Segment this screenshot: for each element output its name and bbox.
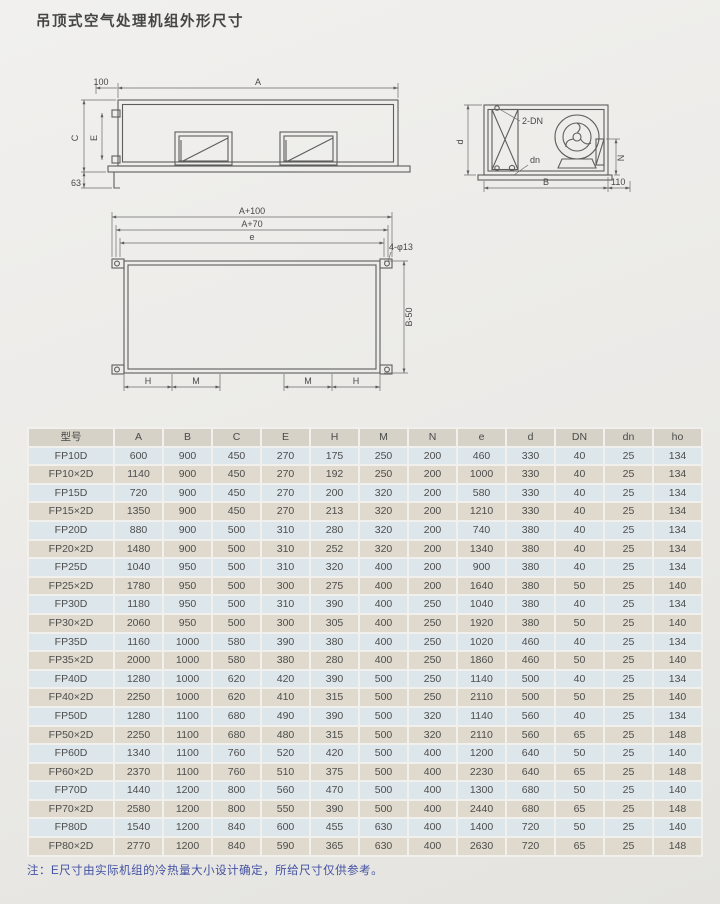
value-cell: 25	[605, 819, 652, 836]
value-cell: 134	[654, 541, 701, 558]
value-cell: 25	[605, 671, 652, 688]
dim-label-e: E	[89, 135, 99, 141]
value-cell: 400	[360, 615, 407, 632]
value-cell: 1200	[164, 801, 211, 818]
value-cell: 500	[213, 559, 260, 576]
value-cell: 250	[409, 596, 456, 613]
value-cell: 134	[654, 466, 701, 483]
value-cell: 1340	[458, 541, 505, 558]
value-cell: 900	[164, 485, 211, 502]
dimension-table: 型号ABCEHMNedDNdnho FP10D60090045027017525…	[27, 427, 703, 857]
value-cell: 1140	[458, 671, 505, 688]
model-cell: FP25×2D	[29, 578, 113, 595]
dim-label-d: d	[455, 139, 465, 144]
value-cell: 1180	[115, 596, 162, 613]
value-cell: 380	[507, 615, 554, 632]
value-cell: 134	[654, 503, 701, 520]
value-cell: 460	[507, 634, 554, 651]
value-cell: 500	[360, 671, 407, 688]
model-cell: FP35×2D	[29, 652, 113, 669]
table-row: FP10D6009004502701752502004603304025134	[29, 448, 701, 465]
value-cell: 380	[311, 634, 358, 651]
value-cell: 270	[262, 503, 309, 520]
value-cell: 500	[360, 764, 407, 781]
model-cell: FP10D	[29, 448, 113, 465]
model-cell: FP80×2D	[29, 838, 113, 855]
table-row: FP70D14401200800560470500400130068050251…	[29, 782, 701, 799]
value-cell: 2370	[115, 764, 162, 781]
value-cell: 950	[164, 559, 211, 576]
value-cell: 500	[213, 541, 260, 558]
column-header: N	[409, 429, 456, 446]
table-row: FP60×2D237011007605103755004002230640652…	[29, 764, 701, 781]
value-cell: 25	[605, 801, 652, 818]
value-cell: 320	[360, 522, 407, 539]
model-cell: FP80D	[29, 819, 113, 836]
value-cell: 65	[556, 801, 603, 818]
column-header: C	[213, 429, 260, 446]
column-header: e	[458, 429, 505, 446]
value-cell: 140	[654, 819, 701, 836]
table-row: FP35D11601000580390380400250102046040251…	[29, 634, 701, 651]
table-row: FP70×2D258012008005503905004002440680652…	[29, 801, 701, 818]
dim-label-110: 110	[611, 177, 625, 187]
dim-label-h-left: H	[145, 376, 152, 386]
value-cell: 1100	[164, 727, 211, 744]
value-cell: 380	[507, 596, 554, 613]
plan-body-outline	[112, 259, 392, 374]
model-cell: FP30×2D	[29, 615, 113, 632]
value-cell: 200	[409, 541, 456, 558]
table-row: FP25D10409505003103204002009003804025134	[29, 559, 701, 576]
dim-label-c: C	[70, 134, 80, 141]
value-cell: 175	[311, 448, 358, 465]
value-cell: 250	[360, 448, 407, 465]
value-cell: 500	[360, 727, 407, 744]
value-cell: 2580	[115, 801, 162, 818]
value-cell: 1210	[458, 503, 505, 520]
value-cell: 520	[262, 745, 309, 762]
dim-label-a100: A+100	[239, 206, 265, 216]
value-cell: 134	[654, 559, 701, 576]
value-cell: 490	[262, 708, 309, 725]
value-cell: 720	[115, 485, 162, 502]
value-cell: 148	[654, 801, 701, 818]
value-cell: 1280	[115, 708, 162, 725]
value-cell: 2000	[115, 652, 162, 669]
value-cell: 390	[311, 801, 358, 818]
table-row: FP10×2D114090045027019225020010003304025…	[29, 466, 701, 483]
value-cell: 50	[556, 689, 603, 706]
value-cell: 390	[311, 596, 358, 613]
value-cell: 2110	[458, 689, 505, 706]
value-cell: 25	[605, 596, 652, 613]
value-cell: 470	[311, 782, 358, 799]
value-cell: 390	[262, 634, 309, 651]
value-cell: 560	[262, 782, 309, 799]
value-cell: 192	[311, 466, 358, 483]
unit-body-outline	[108, 100, 410, 188]
value-cell: 2630	[458, 838, 505, 855]
value-cell: 305	[311, 615, 358, 632]
value-cell: 450	[213, 466, 260, 483]
value-cell: 1200	[458, 745, 505, 762]
value-cell: 310	[262, 522, 309, 539]
value-cell: 140	[654, 578, 701, 595]
value-cell: 1100	[164, 764, 211, 781]
value-cell: 65	[556, 838, 603, 855]
value-cell: 450	[213, 485, 260, 502]
value-cell: 760	[213, 745, 260, 762]
model-cell: FP35D	[29, 634, 113, 651]
value-cell: 140	[654, 615, 701, 632]
value-cell: 50	[556, 615, 603, 632]
table-note: 注：E尺寸由实际机组的冷热量大小设计确定，所给尺寸仅供参考。	[27, 862, 383, 878]
value-cell: 330	[507, 485, 554, 502]
value-cell: 800	[213, 801, 260, 818]
value-cell: 460	[458, 448, 505, 465]
value-cell: 310	[262, 559, 309, 576]
value-cell: 720	[507, 819, 554, 836]
value-cell: 300	[262, 578, 309, 595]
value-cell: 460	[507, 652, 554, 669]
value-cell: 1200	[164, 819, 211, 836]
model-cell: FP20×2D	[29, 541, 113, 558]
value-cell: 250	[409, 634, 456, 651]
value-cell: 40	[556, 485, 603, 502]
value-cell: 134	[654, 522, 701, 539]
value-cell: 330	[507, 503, 554, 520]
value-cell: 680	[213, 727, 260, 744]
value-cell: 680	[507, 782, 554, 799]
column-header: B	[164, 429, 211, 446]
dimension-table-wrap: 型号ABCEHMNedDNdnho FP10D60090045027017525…	[27, 427, 703, 857]
value-cell: 148	[654, 764, 701, 781]
dim-label-h-right: H	[353, 376, 360, 386]
value-cell: 420	[311, 745, 358, 762]
side-view-drawing: 2-DN dn d N B 110	[458, 84, 658, 199]
value-cell: 900	[164, 541, 211, 558]
value-cell: 140	[654, 782, 701, 799]
value-cell: 200	[409, 578, 456, 595]
dim-label-a: A	[255, 77, 261, 87]
model-cell: FP25D	[29, 559, 113, 576]
value-cell: 25	[605, 541, 652, 558]
value-cell: 65	[556, 727, 603, 744]
value-cell: 640	[507, 764, 554, 781]
value-cell: 800	[213, 782, 260, 799]
value-cell: 2440	[458, 801, 505, 818]
value-cell: 500	[213, 596, 260, 613]
value-cell: 315	[311, 727, 358, 744]
value-cell: 25	[605, 838, 652, 855]
table-row: FP50×2D225011006804803155003202110560652…	[29, 727, 701, 744]
column-header: d	[507, 429, 554, 446]
value-cell: 320	[409, 727, 456, 744]
value-cell: 200	[409, 485, 456, 502]
value-cell: 1140	[115, 466, 162, 483]
value-cell: 510	[262, 764, 309, 781]
value-cell: 148	[654, 727, 701, 744]
value-cell: 330	[507, 466, 554, 483]
table-row: FP15×2D135090045027021332020012103304025…	[29, 503, 701, 520]
value-cell: 1140	[458, 708, 505, 725]
value-cell: 25	[605, 782, 652, 799]
value-cell: 840	[213, 838, 260, 855]
value-cell: 680	[213, 708, 260, 725]
header-row: 型号ABCEHMNedDNdnho	[29, 429, 701, 446]
value-cell: 560	[507, 727, 554, 744]
value-cell: 300	[262, 615, 309, 632]
value-cell: 1340	[115, 745, 162, 762]
side-body-outline	[478, 105, 612, 180]
value-cell: 200	[409, 466, 456, 483]
value-cell: 40	[556, 541, 603, 558]
value-cell: 420	[262, 671, 309, 688]
value-cell: 320	[360, 503, 407, 520]
column-header: A	[115, 429, 162, 446]
dim-label-m-left: M	[192, 376, 200, 386]
value-cell: 500	[507, 689, 554, 706]
value-cell: 25	[605, 578, 652, 595]
value-cell: 500	[507, 671, 554, 688]
value-cell: 250	[360, 466, 407, 483]
value-cell: 1000	[164, 634, 211, 651]
value-cell: 250	[409, 652, 456, 669]
value-cell: 50	[556, 745, 603, 762]
table-row: FP35×2D200010005803802804002501860460502…	[29, 652, 701, 669]
value-cell: 1200	[164, 838, 211, 855]
value-cell: 1640	[458, 578, 505, 595]
value-cell: 200	[409, 559, 456, 576]
table-row: FP30D11809505003103904002501040380402513…	[29, 596, 701, 613]
value-cell: 900	[458, 559, 505, 576]
value-cell: 400	[409, 838, 456, 855]
value-cell: 580	[213, 634, 260, 651]
value-cell: 680	[507, 801, 554, 818]
table-row: FP20D8809005003102803202007403804025134	[29, 522, 701, 539]
value-cell: 320	[360, 541, 407, 558]
value-cell: 600	[262, 819, 309, 836]
label-2dn: 2-DN	[522, 116, 543, 126]
table-row: FP50D12801100680490390500320114056040251…	[29, 708, 701, 725]
value-cell: 1000	[164, 652, 211, 669]
value-cell: 25	[605, 559, 652, 576]
value-cell: 500	[360, 689, 407, 706]
value-cell: 400	[360, 596, 407, 613]
value-cell: 134	[654, 708, 701, 725]
value-cell: 1100	[164, 745, 211, 762]
value-cell: 25	[605, 503, 652, 520]
value-cell: 1040	[115, 559, 162, 576]
value-cell: 600	[115, 448, 162, 465]
value-cell: 25	[605, 764, 652, 781]
column-header: 型号	[29, 429, 113, 446]
value-cell: 250	[409, 689, 456, 706]
value-cell: 400	[360, 578, 407, 595]
value-cell: 2230	[458, 764, 505, 781]
value-cell: 40	[556, 559, 603, 576]
value-cell: 200	[311, 485, 358, 502]
value-cell: 50	[556, 578, 603, 595]
value-cell: 2770	[115, 838, 162, 855]
value-cell: 25	[605, 634, 652, 651]
value-cell: 200	[409, 522, 456, 539]
model-cell: FP15×2D	[29, 503, 113, 520]
fan-icon	[555, 115, 599, 168]
value-cell: 213	[311, 503, 358, 520]
value-cell: 25	[605, 448, 652, 465]
value-cell: 950	[164, 578, 211, 595]
value-cell: 375	[311, 764, 358, 781]
value-cell: 140	[654, 652, 701, 669]
value-cell: 950	[164, 596, 211, 613]
value-cell: 25	[605, 522, 652, 539]
value-cell: 40	[556, 466, 603, 483]
value-cell: 380	[507, 522, 554, 539]
value-cell: 630	[360, 838, 407, 855]
model-cell: FP50×2D	[29, 727, 113, 744]
column-header: dn	[605, 429, 652, 446]
value-cell: 900	[164, 503, 211, 520]
value-cell: 1860	[458, 652, 505, 669]
dim-label-b: B	[543, 177, 549, 187]
value-cell: 400	[360, 559, 407, 576]
value-cell: 400	[360, 652, 407, 669]
plan-dimension-lines	[112, 212, 408, 391]
value-cell: 50	[556, 652, 603, 669]
value-cell: 380	[507, 541, 554, 558]
model-cell: FP60×2D	[29, 764, 113, 781]
value-cell: 630	[360, 819, 407, 836]
value-cell: 900	[164, 466, 211, 483]
value-cell: 900	[164, 448, 211, 465]
value-cell: 200	[409, 448, 456, 465]
dim-label-m-right: M	[304, 376, 312, 386]
value-cell: 620	[213, 671, 260, 688]
value-cell: 380	[262, 652, 309, 669]
dim-label-b50: B-50	[404, 307, 414, 326]
value-cell: 640	[507, 745, 554, 762]
value-cell: 740	[458, 522, 505, 539]
value-cell: 25	[605, 708, 652, 725]
value-cell: 40	[556, 596, 603, 613]
model-cell: FP20D	[29, 522, 113, 539]
value-cell: 580	[213, 652, 260, 669]
value-cell: 1000	[164, 689, 211, 706]
value-cell: 270	[262, 466, 309, 483]
value-cell: 25	[605, 727, 652, 744]
value-cell: 25	[605, 652, 652, 669]
dim-label-100: 100	[93, 77, 108, 87]
table-row: FP30×2D206095050030030540025019203805025…	[29, 615, 701, 632]
table-row: FP25×2D178095050030027540020016403805025…	[29, 578, 701, 595]
value-cell: 320	[311, 559, 358, 576]
value-cell: 500	[213, 615, 260, 632]
value-cell: 500	[360, 708, 407, 725]
model-cell: FP40×2D	[29, 689, 113, 706]
value-cell: 1480	[115, 541, 162, 558]
value-cell: 365	[311, 838, 358, 855]
value-cell: 134	[654, 448, 701, 465]
model-cell: FP15D	[29, 485, 113, 502]
value-cell: 40	[556, 671, 603, 688]
value-cell: 1100	[164, 708, 211, 725]
value-cell: 500	[213, 522, 260, 539]
value-cell: 330	[507, 448, 554, 465]
model-cell: FP50D	[29, 708, 113, 725]
value-cell: 310	[262, 596, 309, 613]
value-cell: 455	[311, 819, 358, 836]
value-cell: 500	[360, 801, 407, 818]
value-cell: 134	[654, 671, 701, 688]
value-cell: 40	[556, 448, 603, 465]
value-cell: 1540	[115, 819, 162, 836]
dim-label-a70: A+70	[241, 219, 262, 229]
value-cell: 450	[213, 448, 260, 465]
value-cell: 1440	[115, 782, 162, 799]
model-cell: FP60D	[29, 745, 113, 762]
value-cell: 1300	[458, 782, 505, 799]
value-cell: 40	[556, 634, 603, 651]
value-cell: 200	[409, 503, 456, 520]
value-cell: 400	[360, 634, 407, 651]
value-cell: 134	[654, 485, 701, 502]
value-cell: 280	[311, 522, 358, 539]
value-cell: 1780	[115, 578, 162, 595]
value-cell: 2110	[458, 727, 505, 744]
value-cell: 550	[262, 801, 309, 818]
value-cell: 1040	[458, 596, 505, 613]
value-cell: 500	[360, 782, 407, 799]
table-row: FP40D12801000620420390500250114050040251…	[29, 671, 701, 688]
value-cell: 65	[556, 764, 603, 781]
label-dn: dn	[530, 155, 540, 165]
value-cell: 760	[213, 764, 260, 781]
value-cell: 25	[605, 466, 652, 483]
value-cell: 390	[311, 671, 358, 688]
value-cell: 1920	[458, 615, 505, 632]
value-cell: 140	[654, 745, 701, 762]
value-cell: 1000	[458, 466, 505, 483]
model-cell: FP10×2D	[29, 466, 113, 483]
value-cell: 580	[458, 485, 505, 502]
table-row: FP60D13401100760520420500400120064050251…	[29, 745, 701, 762]
value-cell: 40	[556, 708, 603, 725]
value-cell: 134	[654, 634, 701, 651]
value-cell: 590	[262, 838, 309, 855]
column-header: E	[262, 429, 309, 446]
model-cell: FP70D	[29, 782, 113, 799]
model-cell: FP70×2D	[29, 801, 113, 818]
value-cell: 560	[507, 708, 554, 725]
value-cell: 400	[409, 745, 456, 762]
table-row: FP80×2D277012008405903656304002630720652…	[29, 838, 701, 855]
value-cell: 148	[654, 838, 701, 855]
table-row: FP20×2D148090050031025232020013403804025…	[29, 541, 701, 558]
value-cell: 390	[311, 708, 358, 725]
value-cell: 1280	[115, 671, 162, 688]
value-cell: 400	[409, 782, 456, 799]
value-cell: 380	[507, 559, 554, 576]
column-header: M	[360, 429, 407, 446]
page-title: 吊顶式空气处理机组外形尺寸	[36, 10, 244, 31]
value-cell: 250	[409, 615, 456, 632]
value-cell: 315	[311, 689, 358, 706]
value-cell: 480	[262, 727, 309, 744]
table-row: FP15D7209004502702003202005803304025134	[29, 485, 701, 502]
value-cell: 1400	[458, 819, 505, 836]
